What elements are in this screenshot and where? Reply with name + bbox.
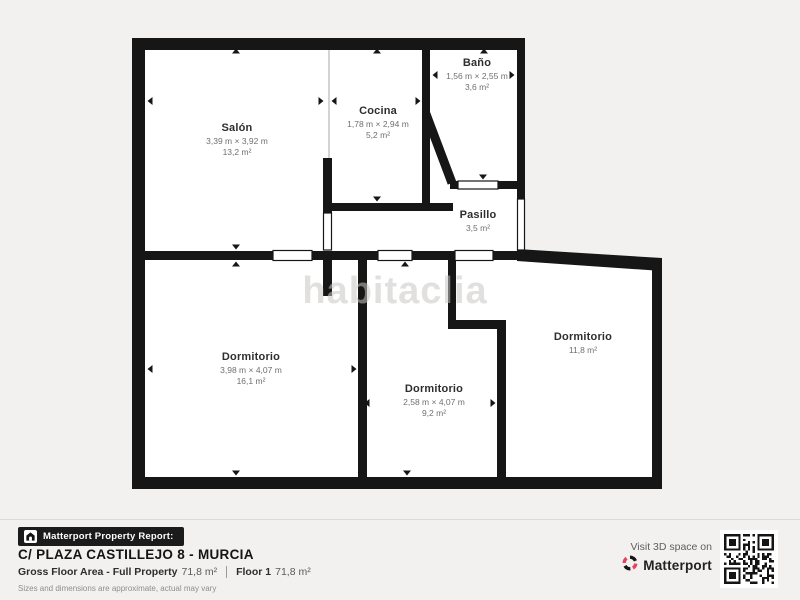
wall-top: [132, 38, 525, 50]
matterport-link[interactable]: Matterport: [622, 555, 712, 576]
floor-plan-svg: [0, 0, 800, 520]
door-dorm-right: [455, 251, 493, 261]
door-entrance: [518, 199, 525, 250]
wall-alcove-bottom: [448, 320, 503, 329]
door-dorm-left: [273, 251, 312, 261]
floor-area-metrics: Gross Floor Area - Full Property 71,8 m²…: [18, 566, 311, 578]
wall-corridor-top: [331, 203, 453, 211]
floor-label: Floor 1: [236, 566, 271, 578]
report-bar-label: Matterport Property Report:: [43, 531, 174, 542]
gross-floor-area-label: Gross Floor Area - Full Property: [18, 566, 177, 578]
floor-plan-page: habitaclia Salón 3,39 m × 3,92 m 13,2 m²…: [0, 0, 800, 600]
wall-left: [132, 38, 145, 489]
house-icon: [24, 530, 37, 543]
footer-divider: [0, 519, 800, 520]
wall-dorm-divider-right: [497, 320, 506, 477]
matterport-brand-name: Matterport: [643, 558, 712, 573]
property-address: C/ PLAZA CASTILLEJO 8 - MURCIA: [18, 547, 254, 562]
metrics-separator: [226, 566, 227, 578]
door-bano: [458, 181, 498, 189]
wall-bottom: [132, 477, 662, 489]
door-dorm-mid: [378, 251, 412, 261]
wall-salon-east: [323, 158, 332, 214]
gross-floor-area-value: 71,8 m²: [181, 566, 217, 578]
wall-dorm-divider-left: [358, 260, 367, 477]
disclaimer-text: Sizes and dimensions are approximate, ac…: [18, 584, 216, 593]
qr-code: [720, 530, 778, 588]
matterport-logo-icon: [622, 555, 638, 576]
wall-stub-dorm-left: [323, 260, 332, 296]
wall-alcove-left: [448, 260, 456, 328]
matterport-report-bar: Matterport Property Report:: [18, 527, 184, 546]
door-salon: [324, 213, 332, 250]
floor-value: 71,8 m²: [275, 566, 311, 578]
wall-right-lower: [652, 261, 662, 489]
visit-3d-label: Visit 3D space on: [630, 541, 712, 553]
